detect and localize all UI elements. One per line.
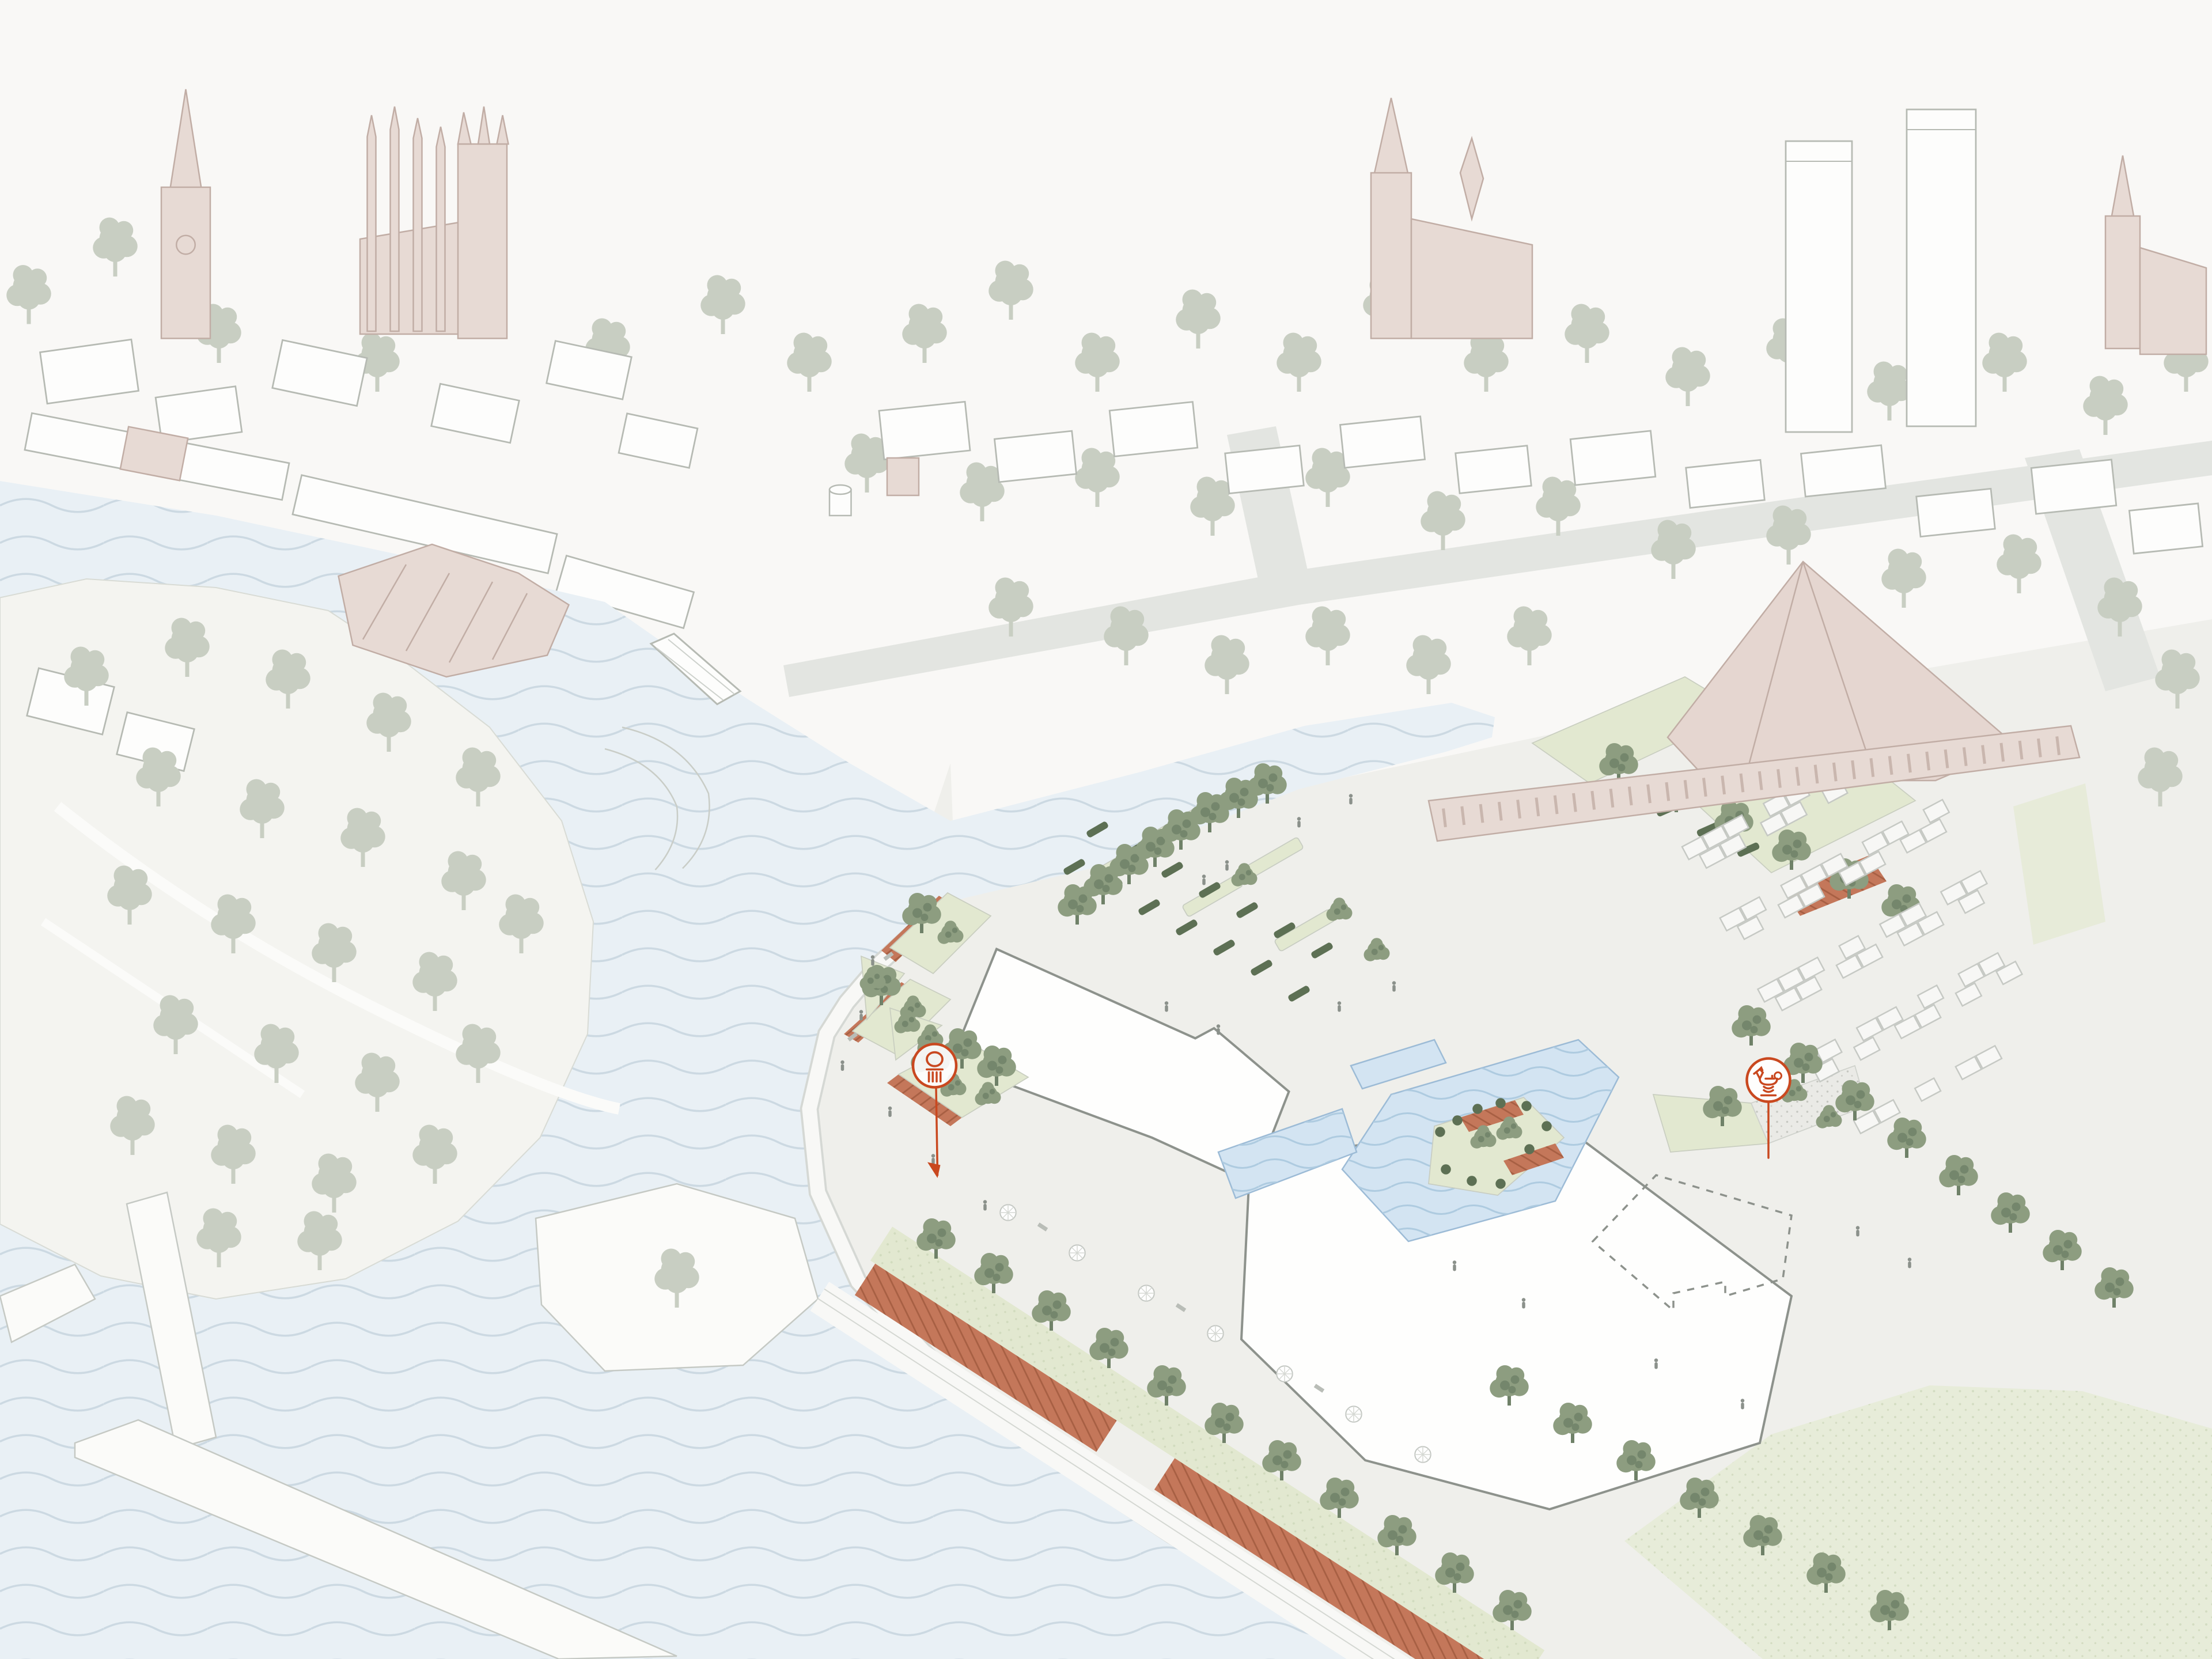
tower-block [1786,141,1852,432]
context-building [2129,503,2202,554]
context-building [1109,402,1198,457]
person [1522,1298,1526,1308]
person [1202,874,1206,885]
context-building [1225,445,1304,493]
person [1856,1226,1860,1236]
context-building [2031,460,2116,514]
parasol [1415,1446,1431,1463]
church-tower [1371,173,1411,339]
person [871,955,875,965]
person [1349,794,1353,804]
person [983,1200,987,1210]
round-tower [829,485,851,516]
person [1908,1257,1912,1268]
person [1741,1399,1745,1409]
person [859,1010,863,1020]
person [1453,1260,1457,1271]
clock-tower-shaft [161,187,210,339]
cathedral-tower [458,144,507,339]
parasol [1000,1205,1016,1221]
cathedral-spire [368,115,376,331]
parasol [1277,1366,1293,1382]
person [840,1060,844,1071]
person [1392,981,1396,991]
context-building [1340,416,1425,468]
context-building [994,431,1076,482]
person [1225,860,1229,870]
parasol [1138,1285,1154,1301]
person [1338,1001,1342,1012]
context-building [1456,446,1532,494]
parasol [1069,1245,1085,1261]
marker-leader-line [936,1088,938,1176]
tower-block [1907,109,1976,426]
context-building [879,402,970,459]
context-building [1801,445,1885,497]
person [888,1107,892,1117]
masterplan-canvas: monument playground [0,0,2212,1659]
person [931,1154,935,1164]
parasol [1207,1325,1224,1342]
context-building [1916,488,1995,536]
person [1654,1358,1658,1369]
cathedral-spire [391,107,399,331]
cathedral-spire [437,127,445,331]
person [1165,1001,1169,1012]
context-building [1686,460,1765,507]
cathedral-spire [414,118,422,331]
person [1297,817,1301,827]
parasol [1346,1406,1362,1422]
pink-house [887,458,919,495]
church-tower [2105,216,2140,349]
context-building [1570,431,1656,485]
person [1217,1024,1221,1035]
